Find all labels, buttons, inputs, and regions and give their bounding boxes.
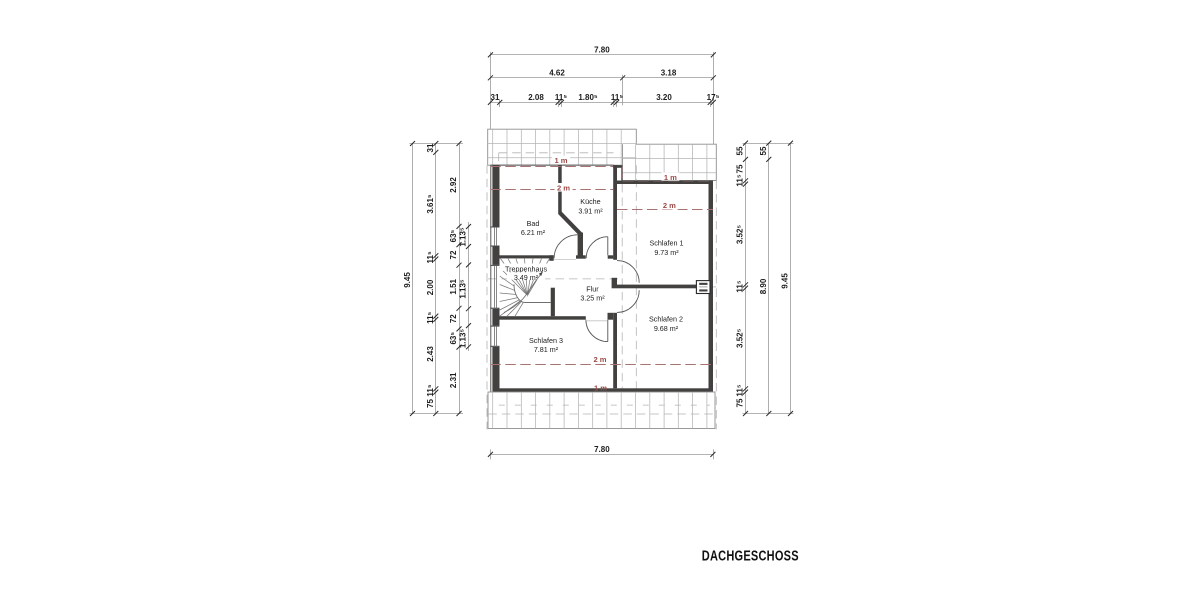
- svg-text:11⁵: 11⁵: [426, 311, 435, 323]
- svg-text:11⁵: 11⁵: [736, 174, 745, 186]
- svg-text:9.68 m²: 9.68 m²: [654, 324, 679, 333]
- svg-text:1.13⁵: 1.13⁵: [459, 329, 468, 349]
- svg-text:2.00: 2.00: [426, 279, 435, 295]
- svg-text:1.13⁵: 1.13⁵: [459, 227, 468, 247]
- svg-text:1 m: 1 m: [554, 156, 567, 165]
- svg-text:72: 72: [449, 250, 458, 259]
- svg-text:9.45: 9.45: [403, 272, 412, 288]
- svg-text:31: 31: [426, 143, 435, 152]
- svg-text:55: 55: [736, 146, 745, 155]
- svg-text:11⁵: 11⁵: [611, 93, 623, 102]
- svg-text:DACHGESCHOSS: DACHGESCHOSS: [702, 548, 799, 564]
- svg-text:3.52⁵: 3.52⁵: [736, 328, 745, 348]
- svg-text:Schlafen 3: Schlafen 3: [529, 336, 563, 345]
- svg-text:2.08: 2.08: [528, 93, 544, 102]
- svg-text:2.92: 2.92: [449, 177, 458, 193]
- svg-text:7.80: 7.80: [594, 445, 610, 454]
- svg-text:11⁵: 11⁵: [736, 280, 745, 292]
- svg-text:63⁵: 63⁵: [449, 229, 458, 242]
- svg-text:Küche: Küche: [580, 197, 600, 206]
- svg-text:72: 72: [449, 314, 458, 323]
- svg-text:Schlafen 2: Schlafen 2: [649, 315, 683, 324]
- svg-text:75: 75: [426, 399, 435, 408]
- svg-text:3.52⁵: 3.52⁵: [736, 225, 745, 245]
- svg-text:4.62: 4.62: [549, 69, 565, 78]
- svg-text:2 m: 2 m: [557, 183, 570, 192]
- svg-text:2 m: 2 m: [593, 355, 606, 364]
- svg-text:Bad: Bad: [527, 219, 540, 228]
- svg-text:11⁵: 11⁵: [426, 384, 435, 396]
- svg-text:75: 75: [736, 164, 745, 173]
- svg-text:3.20: 3.20: [656, 93, 672, 102]
- svg-text:Schlafen 1: Schlafen 1: [650, 239, 684, 248]
- svg-text:2.43: 2.43: [426, 346, 435, 362]
- svg-text:1 m: 1 m: [664, 173, 677, 182]
- svg-text:7.81 m²: 7.81 m²: [534, 345, 559, 354]
- svg-text:1.13⁵: 1.13⁵: [459, 279, 468, 299]
- svg-text:6.21 m²: 6.21 m²: [521, 228, 546, 237]
- svg-text:2.31: 2.31: [449, 372, 458, 388]
- svg-text:Flur: Flur: [586, 285, 599, 294]
- svg-text:3.25 m²: 3.25 m²: [580, 294, 605, 303]
- svg-text:1 m: 1 m: [594, 384, 607, 393]
- svg-text:1.80⁵: 1.80⁵: [578, 93, 598, 102]
- svg-text:9.45: 9.45: [781, 273, 790, 289]
- svg-text:3.91 m²: 3.91 m²: [578, 206, 603, 215]
- svg-text:55: 55: [759, 146, 768, 155]
- svg-text:31: 31: [491, 93, 500, 102]
- svg-text:3.18: 3.18: [661, 69, 677, 78]
- svg-text:11⁵: 11⁵: [555, 93, 567, 102]
- svg-text:11⁵: 11⁵: [426, 251, 435, 263]
- svg-text:11⁵: 11⁵: [736, 384, 745, 396]
- svg-text:9.73 m²: 9.73 m²: [654, 248, 679, 257]
- svg-text:1.51: 1.51: [449, 278, 458, 294]
- svg-text:3.61⁵: 3.61⁵: [426, 194, 435, 214]
- svg-text:2 m: 2 m: [663, 201, 676, 210]
- svg-text:17⁵: 17⁵: [707, 93, 720, 102]
- svg-text:7.80: 7.80: [594, 46, 610, 55]
- svg-text:8.90: 8.90: [759, 278, 768, 294]
- svg-text:63⁵: 63⁵: [449, 332, 458, 345]
- svg-text:3.49 m²: 3.49 m²: [514, 273, 539, 282]
- svg-text:75: 75: [736, 398, 745, 407]
